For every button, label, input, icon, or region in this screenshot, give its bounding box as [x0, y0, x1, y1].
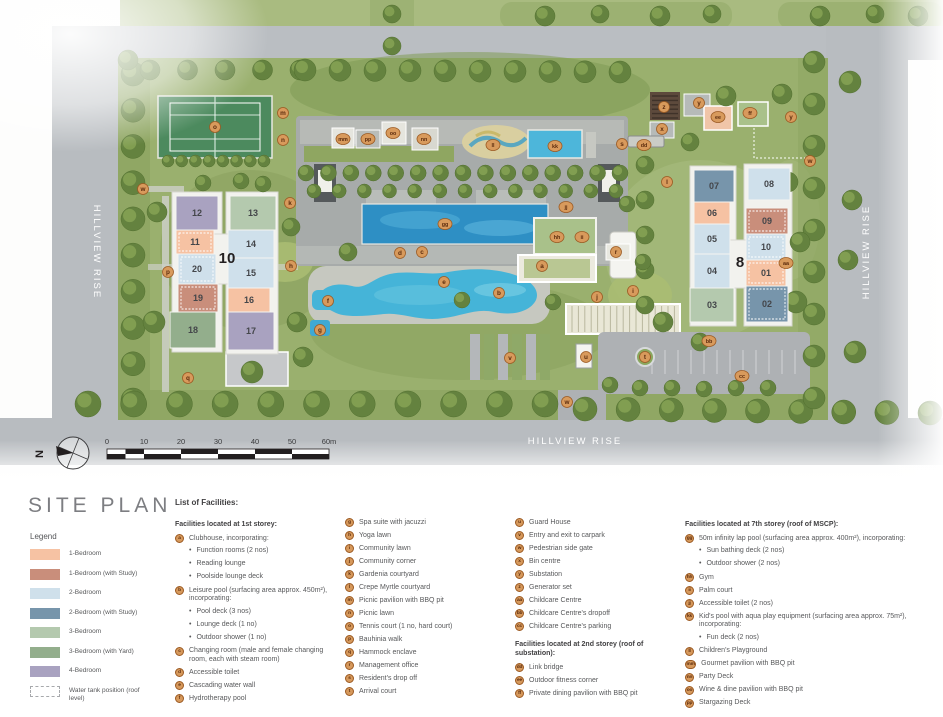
marker-d: d	[395, 248, 406, 259]
tree-highlight	[506, 62, 518, 74]
marker-f: f	[323, 296, 334, 307]
unit-block-04: 04	[694, 254, 730, 288]
facility-label: Palm court	[699, 586, 937, 595]
facility-item-w: wPedestrian side gate	[515, 544, 673, 553]
facility-marker-badge: ff	[515, 689, 524, 698]
facility-label: Gym	[699, 573, 937, 582]
marker-letter: ff	[748, 111, 752, 117]
tree-highlight	[585, 185, 593, 193]
facility-item-ee: eeOutdoor fitness corner	[515, 676, 673, 685]
marker-letter: ee	[715, 115, 721, 121]
bullet-icon: •	[189, 621, 191, 630]
facility-marker-badge: y	[515, 570, 524, 579]
facility-label: Kid's pool with aqua play equipment (sur…	[699, 612, 937, 630]
tree-highlight	[123, 245, 136, 258]
marker-h: h	[286, 261, 297, 272]
tree-highlight	[787, 293, 799, 305]
facility-item-mm: mmGourmet pavilion with BBQ pit	[685, 660, 937, 669]
legend-label: 2-Bedroom	[69, 588, 147, 597]
bullet-icon: •	[189, 547, 191, 556]
legend-label: 3-Bedroom	[69, 627, 147, 636]
marker-x: x	[657, 124, 668, 135]
scale-label: 30	[214, 437, 222, 446]
facility-label: Tennis court (1 no, hard court)	[359, 622, 503, 631]
facility-item-dd: ddLink bridge	[515, 663, 673, 672]
marker-k: k	[285, 198, 296, 209]
bullet-icon: •	[189, 560, 191, 569]
marker-letter: ll	[492, 143, 495, 149]
facility-item-y: ySubstation	[515, 570, 673, 579]
facility-item-t: tArrival court	[345, 687, 503, 696]
marker-letter: e	[442, 279, 446, 286]
page-title: SITE PLAN	[28, 494, 171, 518]
tree-highlight	[456, 166, 465, 175]
unit-block-06: 06	[694, 202, 730, 224]
marker-letter: z	[662, 104, 665, 111]
tree-highlight	[593, 7, 603, 17]
marker-q: q	[183, 373, 194, 384]
marker-letter: oo	[390, 131, 397, 137]
marker-letter: l	[666, 179, 668, 186]
facility-sub-label: Reading lounge	[196, 560, 245, 569]
marker-l: l	[662, 177, 673, 188]
facility-label: Gourmet pavilion with BBQ pit	[701, 660, 937, 669]
legend-swatch	[30, 608, 60, 619]
facility-item-q: qHammock enclave	[345, 648, 503, 657]
facility-sub-label: Outdoor shower (1 no)	[196, 634, 266, 643]
facility-item-c: cChanging room (male and female changing…	[175, 647, 333, 665]
unit-number: 03	[707, 300, 717, 310]
unit-number: 12	[192, 208, 202, 218]
tree-highlight	[322, 166, 331, 175]
unit-number: 11	[190, 237, 200, 247]
tree-highlight	[661, 400, 674, 413]
legend-swatch	[30, 549, 60, 560]
facility-label: Entry and exit to carpark	[529, 531, 673, 540]
facility-item-g: gSpa suite with jacuzzi	[345, 518, 503, 527]
tree-highlight	[613, 166, 622, 175]
facility-item-ll: llChildren's Playground	[685, 647, 937, 656]
unit-block-16: 16	[228, 288, 270, 312]
facility-label: Hammock enclave	[359, 648, 503, 657]
marker-letter: y	[789, 114, 793, 121]
facility-label: Changing room (male and female changing …	[189, 647, 333, 665]
facility-label: 50m infinity lap pool (surfacing area ap…	[699, 534, 937, 543]
facilities-subheader: Facilities located at 7th storey (roof o…	[685, 520, 937, 529]
marker-j: j	[592, 292, 603, 303]
facility-label: Hydrotherapy pool	[189, 694, 333, 703]
marker-letter: g	[318, 327, 322, 334]
marker-letter: gg	[442, 222, 449, 228]
marker-t: t	[640, 352, 651, 363]
bullet-icon: •	[189, 608, 191, 617]
tree-highlight	[455, 293, 464, 302]
legend-label: 1-Bedroom	[69, 549, 147, 558]
tree-highlight	[840, 252, 851, 263]
marker-letter: bb	[706, 339, 713, 345]
tree-highlight	[331, 61, 343, 73]
facility-marker-badge: a	[175, 534, 184, 543]
marker-letter: nn	[421, 137, 428, 143]
facility-label: Outdoor fitness corner	[529, 676, 673, 685]
tree-highlight	[638, 158, 648, 168]
unit-number: 04	[707, 266, 717, 276]
facility-label: Management office	[359, 661, 503, 670]
tree-highlight	[805, 389, 817, 401]
legend-label: 4-Bedroom	[69, 666, 147, 675]
facility-item-jj: jjAccessible toilet (2 nos)	[685, 599, 937, 608]
facility-label: Leisure pool (surfacing area approx. 450…	[189, 586, 333, 604]
facilities-subheader: Facilities located at 1st storey:	[175, 520, 333, 529]
unit-number: 16	[244, 295, 254, 305]
tree-highlight	[761, 381, 770, 390]
facility-marker-badge: k	[345, 570, 354, 579]
tree-highlight	[351, 393, 365, 407]
facility-item-ii: iiPalm court	[685, 586, 937, 595]
facility-marker-badge: s	[345, 674, 354, 683]
tree-highlight	[812, 8, 823, 19]
tree-highlight	[385, 7, 395, 17]
facility-marker-badge: p	[345, 635, 354, 644]
facility-marker-badge: gg	[685, 534, 694, 543]
tree-highlight	[366, 61, 378, 73]
facility-item-x: xBin centre	[515, 557, 673, 566]
tree-highlight	[385, 39, 395, 49]
tree-highlight	[123, 318, 136, 331]
tree-highlight	[149, 204, 160, 215]
facility-marker-badge: x	[515, 557, 524, 566]
facility-label: Clubhouse, incorporating:	[189, 534, 333, 543]
marker-y: y	[786, 112, 797, 123]
facility-item-d: dAccessible toilet	[175, 668, 333, 677]
tree-highlight	[359, 185, 367, 193]
marker-letter: kk	[552, 144, 558, 150]
tree-highlight	[260, 393, 274, 407]
unit-block-09: 09	[746, 208, 788, 234]
legend: Legend 1-Bedroom1-Bedroom (with Study)2-…	[30, 532, 160, 711]
tree-highlight	[535, 185, 543, 193]
facility-label: Children's Playground	[699, 647, 937, 656]
marker-letter: i	[632, 288, 634, 295]
tree-highlight	[844, 192, 855, 203]
marker-letter: mm	[338, 137, 348, 143]
tree-highlight	[123, 281, 136, 294]
marker-letter: h	[289, 263, 293, 270]
marker-b: b	[494, 288, 505, 299]
facility-label: Generator set	[529, 583, 673, 592]
tree-highlight	[284, 220, 294, 230]
facility-label: Accessible toilet	[189, 668, 333, 677]
road-label-right: HILLVIEW RISE	[861, 205, 872, 299]
tree-highlight	[576, 63, 588, 75]
tree-highlight	[443, 393, 457, 407]
tree-highlight	[693, 335, 703, 345]
unit-block-02: 02	[746, 286, 788, 322]
facility-item-kk: kkKid's pool with aqua play equipment (s…	[685, 612, 937, 630]
ramp-stripe	[526, 334, 536, 380]
tree-highlight	[401, 62, 413, 74]
marker-ee: ee	[711, 112, 725, 123]
marker-gg: gg	[438, 219, 452, 230]
facility-sub-item: •Lounge deck (1 no)	[189, 621, 333, 630]
tree-highlight	[575, 399, 588, 412]
marker-oo: oo	[386, 128, 400, 139]
scale-label: 50	[288, 437, 296, 446]
facility-label: Childcare Centre's parking	[529, 622, 673, 631]
tree-highlight	[367, 166, 376, 175]
facility-sub-item: •Reading lounge	[189, 560, 333, 569]
facility-item-s: sResident's drop off	[345, 674, 503, 683]
tree-highlight	[333, 185, 341, 193]
marker-letter: q	[186, 375, 190, 382]
facility-item-a: aClubhouse, incorporating:	[175, 534, 333, 543]
tree-highlight	[718, 88, 729, 99]
unit-block-20: 20	[178, 254, 216, 284]
facility-item-pp: ppStargazing Deck	[685, 699, 937, 708]
unit-number: 19	[193, 293, 203, 303]
facility-item-bb: bbChildcare Centre's dropoff	[515, 609, 673, 618]
tree-highlight	[501, 166, 510, 175]
tree-highlight	[484, 185, 492, 193]
tree-highlight	[569, 166, 578, 175]
marker-kk: kk	[548, 141, 562, 152]
block-number-10: 10	[219, 250, 236, 267]
facility-item-v: vEntry and exit to carpark	[515, 531, 673, 540]
facility-sub-item: •Function rooms (2 nos)	[189, 547, 333, 556]
tree-highlight	[214, 393, 228, 407]
tree-highlight	[805, 305, 817, 317]
tree-highlight	[243, 363, 255, 375]
tree-highlight	[524, 166, 533, 175]
facility-sub-label: Fun deck (2 nos)	[706, 634, 759, 643]
unit-block-10: 10	[746, 234, 786, 260]
legend-item: 3-Bedroom (with Yard)	[30, 647, 160, 658]
tree-highlight	[397, 393, 411, 407]
tree-highlight	[791, 402, 804, 415]
facility-marker-badge: t	[345, 687, 354, 696]
facility-marker-badge: q	[345, 648, 354, 657]
unit-block-18: 18	[170, 312, 216, 348]
unit-number: 08	[764, 179, 774, 189]
tree-highlight	[805, 137, 817, 149]
facility-label: Childcare Centre's dropoff	[529, 609, 673, 618]
marker-letter: b	[497, 290, 501, 297]
tree-highlight	[459, 185, 467, 193]
marker-r: r	[611, 247, 622, 258]
unit-block-07: 07	[694, 170, 734, 202]
marker-nn: nn	[417, 134, 431, 145]
tree-highlight	[805, 221, 817, 233]
tree-highlight	[169, 393, 183, 407]
unit-block-11: 11	[176, 230, 214, 254]
legend-label: 2-Bedroom (with Study)	[69, 608, 147, 617]
marker-jj: jj	[559, 202, 573, 213]
legend-label: 1-Bedroom (with Study)	[69, 569, 147, 578]
legend-swatch	[30, 588, 60, 599]
unit-number: 18	[188, 325, 198, 335]
marker-letter: cc	[739, 374, 745, 380]
tree-highlight	[636, 255, 645, 264]
facility-label: Bauhinia walk	[359, 635, 503, 644]
marker-w: w	[805, 156, 816, 167]
facility-marker-badge: u	[515, 518, 524, 527]
unit-number: 10	[761, 242, 771, 252]
tree-highlight	[748, 401, 761, 414]
facility-sub-label: Poolside lounge deck	[196, 573, 263, 582]
marker-letter: pp	[365, 137, 372, 143]
facilities-column-4: Facilities located at 7th storey (roof o…	[685, 518, 937, 712]
legend-label: Water tank position (roof level)	[69, 686, 147, 703]
tree-highlight	[618, 400, 631, 413]
facility-sub-label: Pool deck (3 nos)	[196, 608, 250, 617]
facilities-title: List of Facilities:	[175, 498, 238, 507]
tree-highlight	[610, 185, 618, 193]
facilities-column-3: uGuard HousevEntry and exit to carparkwP…	[515, 518, 673, 702]
scale-label: 0	[105, 437, 109, 446]
marker-bb: bb	[702, 336, 716, 347]
facility-marker-badge: oo	[685, 686, 694, 695]
facility-label: Gardenia courtyard	[359, 570, 503, 579]
tree-highlight	[846, 343, 858, 355]
legend-title: Legend	[30, 532, 160, 541]
tree-highlight	[868, 7, 878, 17]
marker-letter: j	[595, 294, 598, 301]
marker-letter: jj	[564, 205, 568, 211]
facility-sub-item: •Outdoor shower (1 no)	[189, 634, 333, 643]
tree-highlight	[123, 354, 136, 367]
block-number-8: 8	[736, 254, 744, 271]
facility-label: Cascading water wall	[189, 681, 333, 690]
facility-sub-label: Lounge deck (1 no)	[196, 621, 256, 630]
facility-marker-badge: i	[345, 544, 354, 553]
unit-number: 17	[246, 326, 256, 336]
facility-marker-badge: w	[515, 544, 524, 553]
marker-letter: aa	[783, 261, 790, 267]
facility-label: Arrival court	[359, 687, 503, 696]
legend-swatch	[30, 647, 60, 658]
marker-ll: ll	[486, 140, 500, 151]
unit-number: 14	[246, 239, 256, 249]
tree-highlight	[289, 314, 300, 325]
marker-ii: ii	[575, 232, 589, 243]
tree-highlight	[510, 185, 518, 193]
facility-label: Childcare Centre	[529, 596, 673, 605]
facility-sub-label: Outdoor shower (2 nos)	[706, 560, 780, 569]
scale-label: 60m	[322, 437, 337, 446]
facility-sub-item: •Sun bathing deck (2 nos)	[699, 547, 937, 556]
facility-marker-badge: dd	[515, 663, 524, 672]
tree-highlight	[805, 53, 817, 65]
facility-label: Resident's drop off	[359, 674, 503, 683]
facility-marker-badge: nn	[685, 673, 694, 682]
facility-marker-badge: v	[515, 531, 524, 540]
marker-letter: w	[564, 399, 570, 406]
unit-number: 20	[192, 264, 202, 274]
marker-letter: v	[508, 355, 512, 362]
facility-item-b: bLeisure pool (surfacing area approx. 45…	[175, 586, 333, 604]
marker-letter: w	[807, 158, 813, 165]
facility-label: Private dining pavilion with BBQ pit	[529, 689, 673, 698]
unit-number: 15	[246, 268, 256, 278]
facility-item-f: fHydrotherapy pool	[175, 694, 333, 703]
site-plan-map: 1213111420151916181707080609051004010302…	[0, 0, 943, 478]
unit-number: 06	[707, 208, 717, 218]
marker-z: z	[659, 102, 670, 113]
facility-label: Spa suite with jacuzzi	[359, 518, 503, 527]
legend-item: 2-Bedroom (with Study)	[30, 608, 160, 619]
legend-swatch	[30, 569, 60, 580]
facility-item-ff: ffPrivate dining pavilion with BBQ pit	[515, 689, 673, 698]
ramp-stripe	[540, 334, 550, 380]
tree-highlight	[295, 349, 306, 360]
marker-letter: p	[166, 269, 170, 276]
facility-label: Accessible toilet (2 nos)	[699, 599, 937, 608]
tree-highlight	[665, 381, 674, 390]
marker-letter: hh	[554, 235, 561, 241]
facility-label: Party Deck	[699, 673, 937, 682]
tree-highlight	[841, 73, 853, 85]
tree-highlight	[729, 381, 738, 390]
facility-marker-badge: mm	[685, 660, 696, 669]
facility-item-m: mPicnic pavilion with BBQ pit	[345, 596, 503, 605]
marker-w: w	[562, 397, 573, 408]
tree-highlight	[591, 166, 600, 175]
tree-highlight	[805, 179, 817, 191]
tree-highlight	[805, 347, 817, 359]
facility-marker-badge: e	[175, 681, 184, 690]
unit-block-05: 05	[694, 224, 730, 254]
marker-letter: ii	[581, 235, 584, 241]
facilities-subheader: Facilities located at 2nd storey (roof o…	[515, 640, 673, 658]
facility-marker-badge: g	[345, 518, 354, 527]
facility-item-l: lCrepe Myrtle courtyard	[345, 583, 503, 592]
facility-sub-item: •Pool deck (3 nos)	[189, 608, 333, 617]
facility-label: Link bridge	[529, 663, 673, 672]
marker-letter: s	[620, 141, 624, 148]
scale-label: 40	[251, 437, 259, 446]
unit-block-03: 03	[690, 288, 734, 322]
marker-ff: ff	[743, 108, 757, 119]
tree-highlight	[145, 313, 157, 325]
marker-letter: c	[420, 249, 424, 256]
facility-marker-badge: l	[345, 583, 354, 592]
facility-label: Bin centre	[529, 557, 673, 566]
facility-item-cc: ccChildcare Centre's parking	[515, 622, 673, 631]
marker-u: u	[581, 352, 592, 363]
facility-sub-item: •Fun deck (2 nos)	[699, 634, 937, 643]
facility-marker-badge: z	[515, 583, 524, 592]
tree-highlight	[705, 7, 715, 17]
tree-highlight	[633, 381, 642, 390]
tree-highlight	[534, 393, 548, 407]
marker-aa: aa	[779, 258, 793, 269]
facility-item-p: pBauhinia walk	[345, 635, 503, 644]
marker-letter: k	[288, 200, 292, 207]
facility-marker-badge: f	[175, 694, 184, 703]
unit-block-19: 19	[178, 284, 218, 312]
bauhinia-walk-path	[162, 196, 169, 392]
tree-highlight	[805, 95, 817, 107]
tree-highlight	[546, 295, 555, 304]
facility-marker-badge: ll	[685, 647, 694, 656]
facility-item-aa: aaChildcare Centre	[515, 596, 673, 605]
facility-item-gg: gg50m infinity lap pool (surfacing area …	[685, 534, 937, 543]
tree-highlight	[834, 402, 847, 415]
tree-highlight	[560, 185, 568, 193]
legend-rows: 1-Bedroom1-Bedroom (with Study)2-Bedroom…	[30, 549, 160, 703]
tree-highlight	[603, 378, 612, 387]
legend-item: 1-Bedroom	[30, 549, 160, 560]
